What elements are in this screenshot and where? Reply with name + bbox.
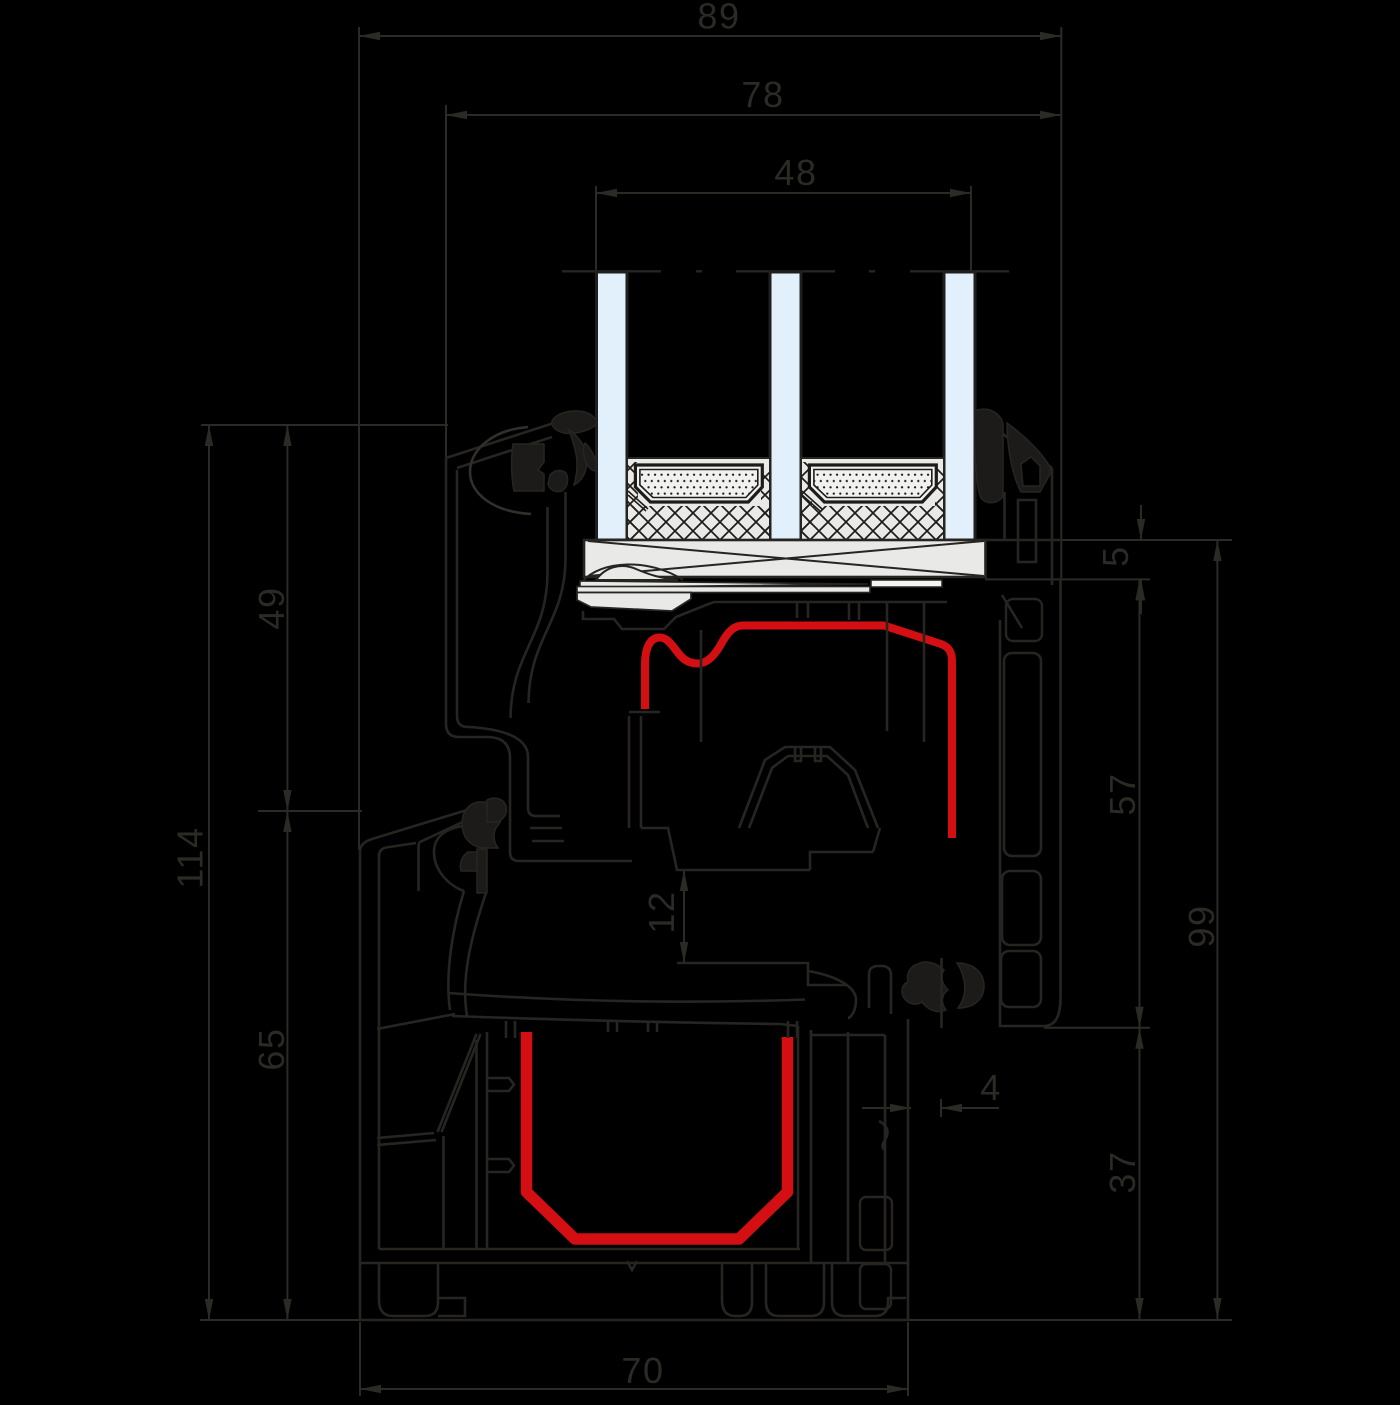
svg-text:99: 99 [1181,904,1222,947]
svg-text:37: 37 [1102,1150,1143,1193]
svg-text:89: 89 [697,0,740,37]
svg-text:114: 114 [170,826,211,888]
svg-text:4: 4 [980,1067,1002,1108]
svg-text:78: 78 [741,74,784,115]
svg-text:65: 65 [251,1027,292,1070]
svg-text:5: 5 [1095,545,1136,567]
svg-text:48: 48 [774,152,817,193]
svg-text:57: 57 [1102,772,1143,815]
svg-text:70: 70 [621,1350,664,1391]
svg-text:49: 49 [251,586,292,629]
svg-text:12: 12 [641,890,682,933]
